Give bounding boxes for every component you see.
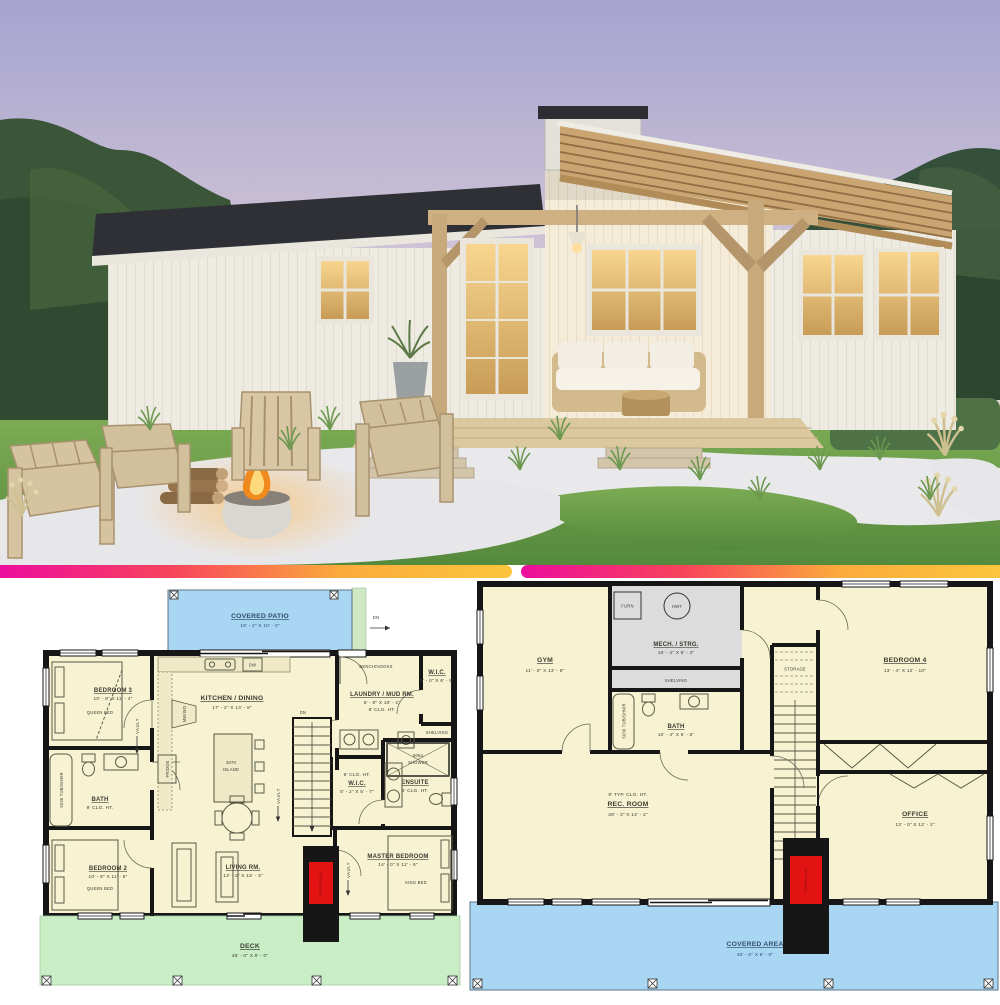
deck-dims: 46' - 0" X 8' - 0"	[232, 953, 269, 959]
svg-text:10' - 8" X 11' - 6": 10' - 8" X 11' - 6"	[88, 874, 127, 880]
svg-text:14' - 0" X 12' - 6": 14' - 0" X 12' - 6"	[378, 862, 418, 868]
covered-area-label: COVERED AREA	[727, 941, 784, 948]
kitchen-label: KITCHEN / DINING	[201, 695, 264, 702]
deck-door	[227, 913, 261, 919]
svg-text:HWT: HWT	[672, 604, 682, 609]
deck-label: DECK	[240, 943, 260, 950]
svg-text:10' - 4" X 5' - 6": 10' - 4" X 5' - 6"	[658, 732, 695, 738]
stairs-dn-label: DN	[300, 710, 306, 715]
svg-text:9' TYP. CLG. HT.: 9' TYP. CLG. HT.	[608, 792, 647, 798]
bedroom4-label: BEDROOM 4	[884, 657, 927, 664]
master-label: MASTER BEDROOM	[367, 854, 428, 860]
deck	[40, 916, 460, 985]
dw-label: DW	[249, 663, 256, 668]
covered-patio	[168, 590, 352, 653]
svg-text:9' CLG. HT.: 9' CLG. HT.	[87, 805, 114, 811]
gym-label: GYM	[537, 657, 553, 664]
bedroom2-label: BEDROOM 2	[89, 866, 128, 872]
svg-text:SHOWER: SHOWER	[408, 760, 428, 765]
mech-label: MECH. / STRG.	[653, 642, 698, 648]
wic-top-label: W.I.C.	[428, 670, 446, 676]
svg-text:FURN: FURN	[621, 604, 633, 609]
main-floor-plan: COVERED PATIO 19' - 2" X 10' - 0" DN DEC…	[40, 588, 460, 985]
svg-text:VAULT: VAULT	[276, 788, 281, 804]
living-label: LIVING RM.	[226, 865, 261, 871]
svg-text:KING BED: KING BED	[405, 880, 427, 885]
window-center	[586, 244, 702, 336]
patio-dims: 19' - 2" X 10' - 0"	[240, 623, 280, 629]
gradient-divider-left	[0, 565, 512, 578]
mech-shelving-label: SHELVING	[665, 678, 687, 683]
svg-text:8' CLG. HT.: 8' CLG. HT.	[369, 707, 396, 713]
porch-post-left	[432, 214, 447, 422]
gradient-divider	[0, 565, 1000, 578]
porch-post-right	[748, 200, 764, 426]
shelving-label: SHELVING	[426, 730, 448, 735]
rec-sliding-door	[648, 899, 770, 906]
wic-master-label: W.I.C.	[348, 781, 366, 787]
laundry-label: LAUNDRY / MUD RM.	[350, 692, 414, 698]
svg-text:QUEEN BED: QUEEN BED	[87, 710, 113, 715]
patio-sliding-door	[200, 650, 330, 657]
mech-room	[610, 586, 742, 690]
floor-plans: COVERED PATIO 19' - 2" X 10' - 0" DN DEC…	[0, 578, 1000, 1000]
svg-text:QUEEN BED: QUEEN BED	[87, 886, 113, 891]
kitchen-dims: 17' - 2" X 13' - 9"	[212, 705, 252, 711]
mw-oven-label: MW/WO	[182, 705, 187, 722]
fridge-label: FRIDGE	[165, 760, 170, 777]
fireplace-icon: FIREPLACE	[303, 846, 339, 942]
patio-label: COVERED PATIO	[231, 613, 289, 620]
svg-text:9' CLG. HT.: 9' CLG. HT.	[402, 788, 429, 794]
svg-text:10' - 8" X 11' - 4": 10' - 8" X 11' - 4"	[93, 696, 132, 702]
ensuite-label: ENSUITE	[401, 780, 428, 786]
patio-dn-label: DN	[373, 615, 379, 620]
storage-label: STORAGE	[784, 667, 806, 672]
floor-plans-svg: COVERED PATIO 19' - 2" X 10' - 0" DN DEC…	[0, 578, 1000, 1000]
rec-room-label: REC. ROOM	[607, 801, 648, 808]
exterior-photo	[0, 0, 1000, 565]
svg-text:8' - 8" X 10' - 1": 8' - 8" X 10' - 1"	[364, 700, 401, 706]
patio-steps-strip	[352, 588, 366, 653]
lower-floor-plan: COVERED AREA 46' - 0" X 8' - 0"	[470, 581, 998, 990]
svg-text:5' - 0" X 6' - 9": 5' - 0" X 6' - 9"	[420, 678, 454, 684]
svg-text:3070: 3070	[226, 760, 237, 765]
svg-text:13' - 2" X 15' - 3": 13' - 2" X 15' - 3"	[223, 873, 263, 879]
photo-scene	[0, 0, 1000, 565]
svg-text:10' - 4" X 8' - 4": 10' - 4" X 8' - 4"	[658, 650, 695, 656]
svg-text:ISLAND: ISLAND	[223, 767, 239, 772]
gradient-divider-right	[521, 565, 1000, 578]
svg-text:6054: 6054	[413, 753, 424, 758]
coffee-table	[622, 390, 670, 416]
stairs-down: DN	[293, 710, 331, 836]
bedroom4-dims: 13' - 4" X 12' - 10"	[884, 668, 926, 674]
glass-door	[460, 238, 534, 400]
svg-text:FIREPLACE: FIREPLACE	[319, 871, 323, 895]
bench-hooks-label: BENCH/HOOKS	[359, 664, 392, 669]
bath-label: BATH	[91, 797, 108, 803]
svg-text:FIREPLACE: FIREPLACE	[804, 868, 808, 892]
office-dims: 13' - 0" X 12' - 2"	[895, 822, 935, 828]
svg-text:5' - 2" X 5' - 7": 5' - 2" X 5' - 7"	[340, 789, 374, 795]
bedroom3-label: BEDROOM 3	[94, 688, 133, 694]
clerestory-cap	[538, 106, 648, 119]
svg-text:9' CLG. HT.: 9' CLG. HT.	[344, 772, 371, 778]
window-left-small	[316, 256, 374, 324]
svg-text:VAULT: VAULT	[135, 718, 140, 734]
svg-text:VAULT: VAULT	[346, 862, 351, 878]
svg-text:5036 TUB/SHWR: 5036 TUB/SHWR	[622, 703, 627, 738]
porch-steps-center	[598, 448, 710, 468]
svg-text:28' - 3" X 14' - 2": 28' - 3" X 14' - 2"	[608, 812, 648, 818]
adirondack-chair	[232, 392, 320, 480]
office-label: OFFICE	[902, 811, 928, 818]
covered-area-dims: 46' - 0" X 8' - 0"	[737, 952, 774, 958]
fireplace-icon: FIREPLACE	[783, 838, 829, 954]
svg-text:5036 TUB/SHWR: 5036 TUB/SHWR	[59, 772, 64, 807]
gym-dims: 11' - 0" X 13' - 8"	[525, 668, 564, 674]
bath-lower-label: BATH	[667, 724, 684, 730]
